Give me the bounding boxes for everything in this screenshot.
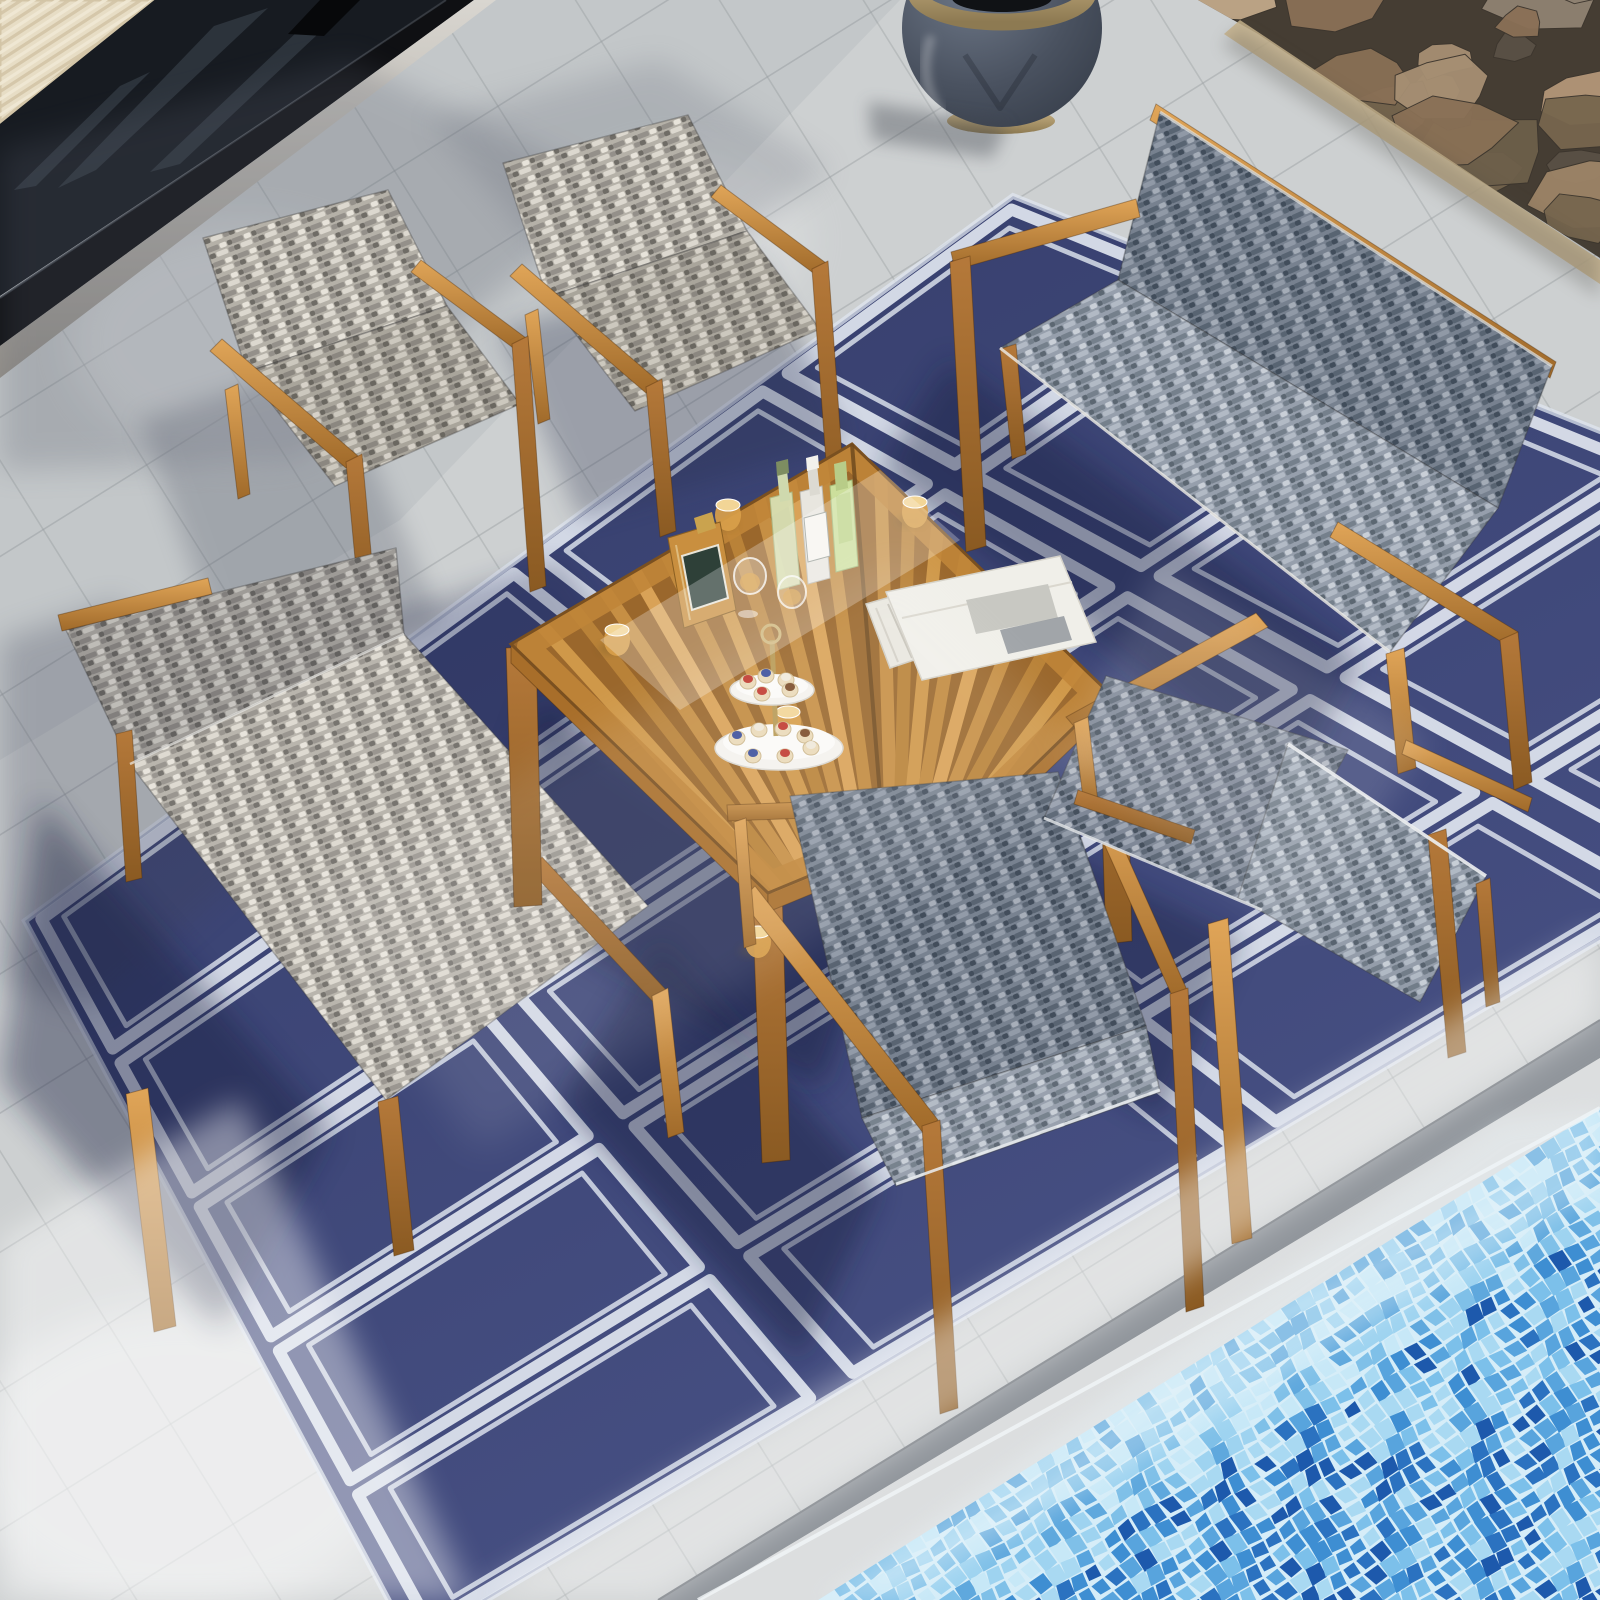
scene-svg: [0, 0, 1600, 1600]
patio-scene: Top-down outdoor patio scene: a 7-piece …: [0, 0, 1600, 1600]
